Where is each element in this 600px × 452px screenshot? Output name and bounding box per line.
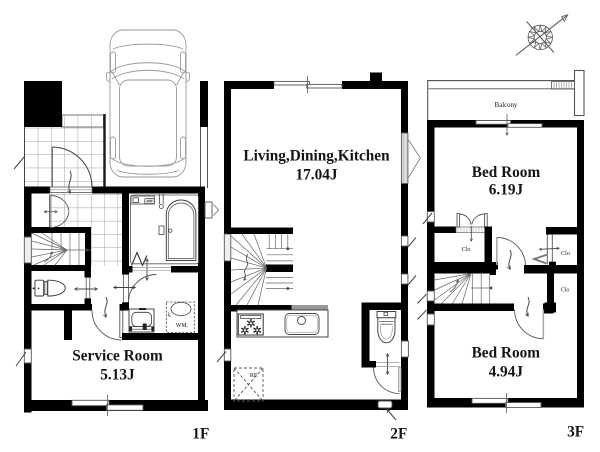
svg-text:3F: 3F <box>567 424 584 441</box>
svg-text:RF.: RF. <box>250 373 259 379</box>
svg-text:Bed Room: Bed Room <box>472 164 541 181</box>
svg-text:4.94J: 4.94J <box>489 364 524 381</box>
svg-text:1F: 1F <box>192 426 209 443</box>
svg-text:Service Room: Service Room <box>72 348 163 365</box>
svg-text:Living,Dining,Kitchen: Living,Dining,Kitchen <box>243 148 390 165</box>
svg-text:Clo: Clo <box>561 288 570 294</box>
svg-text:5.13J: 5.13J <box>100 367 135 384</box>
svg-text:6.19J: 6.19J <box>489 182 524 199</box>
svg-text:Clo: Clo <box>462 247 471 253</box>
svg-text:17.04J: 17.04J <box>295 167 337 184</box>
svg-text:Clo: Clo <box>561 251 570 257</box>
svg-text:WM.: WM. <box>176 323 189 329</box>
svg-text:Balcony: Balcony <box>495 102 518 109</box>
svg-text:Bed Room: Bed Room <box>472 345 541 362</box>
svg-text:2F: 2F <box>390 426 407 443</box>
